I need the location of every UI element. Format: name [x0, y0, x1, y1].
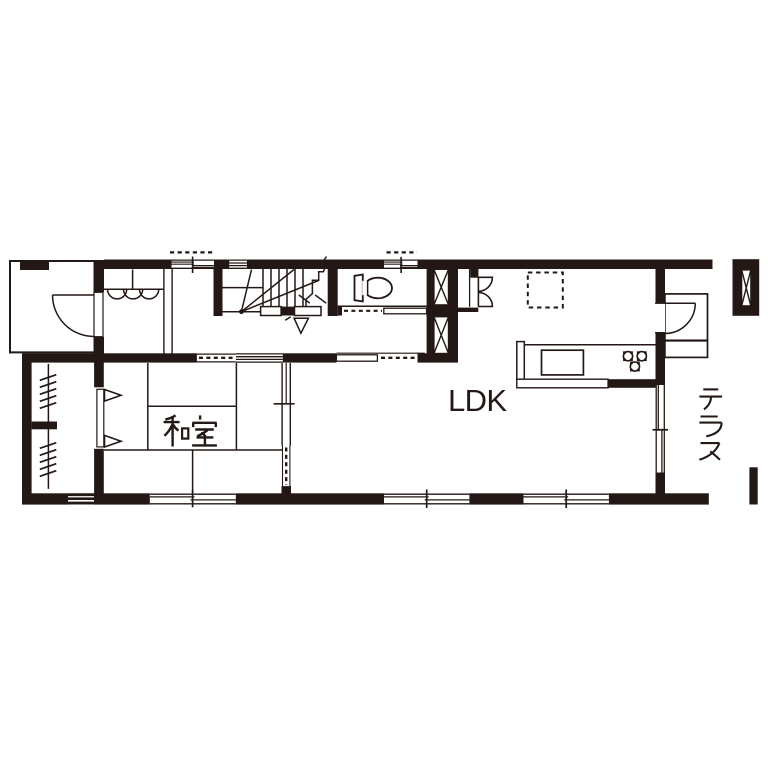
- svg-text:LDK: LDK: [448, 383, 507, 418]
